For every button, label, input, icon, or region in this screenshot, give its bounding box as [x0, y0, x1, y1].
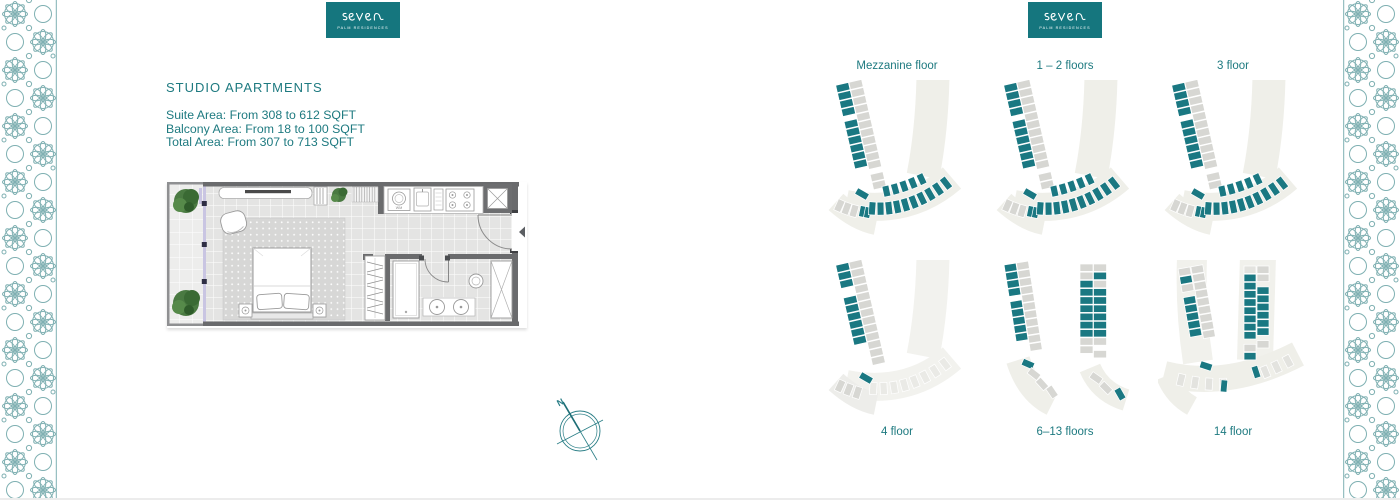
key-plan-1-2-floors: 1 – 2 floors	[990, 60, 1140, 244]
key-plan-label: 1 – 2 floors	[990, 60, 1140, 72]
key-plan-14-floor: 14 floor	[1158, 260, 1308, 438]
key-plan-4-floor: 4 floor	[822, 260, 972, 438]
svg-text:N: N	[555, 396, 565, 408]
key-plan-6-13-floors: 6–13 floors	[990, 260, 1140, 438]
page-title: STUDIO APARTMENTS	[166, 80, 365, 95]
brochure-page: PALM RESIDENCES PALM RESIDENCES STUDIO A…	[0, 0, 1400, 500]
washer-label: WM	[396, 206, 402, 210]
key-plan-label: 14 floor	[1158, 426, 1308, 438]
balcony-area-line: Balcony Area: From 18 to 100 SQFT	[166, 123, 365, 137]
apartment-info: STUDIO APARTMENTS Suite Area: From 308 t…	[166, 80, 365, 150]
ornament-border-right	[1343, 0, 1400, 500]
key-plan-3-floor: 3 floor	[1158, 60, 1308, 244]
key-plan-mezzanine: Mezzanine floor	[822, 60, 972, 244]
suite-area-line: Suite Area: From 308 to 612 SQFT	[166, 109, 365, 123]
kitchen: WM	[384, 187, 483, 214]
key-plan-label: Mezzanine floor	[822, 60, 972, 72]
key-plan-label: 3 floor	[1158, 60, 1308, 72]
ornament-border-left	[0, 0, 57, 500]
entrance-marker	[519, 227, 525, 238]
elevator-shaft	[483, 184, 512, 213]
compass-icon: N	[550, 394, 610, 464]
seven-palm-logo: PALM RESIDENCES	[326, 2, 400, 38]
svg-text:PALM RESIDENCES: PALM RESIDENCES	[1039, 26, 1090, 30]
seven-palm-logo: PALM RESIDENCES	[1028, 2, 1102, 38]
studio-floor-plan: WM	[167, 182, 527, 328]
svg-text:PALM RESIDENCES: PALM RESIDENCES	[337, 26, 388, 30]
curtain-closet	[352, 187, 378, 202]
key-plan-label: 6–13 floors	[990, 426, 1140, 438]
key-plan-label: 4 floor	[822, 426, 972, 438]
total-area-line: Total Area: From 307 to 713 SQFT	[166, 136, 365, 150]
wardrobe	[365, 256, 385, 320]
